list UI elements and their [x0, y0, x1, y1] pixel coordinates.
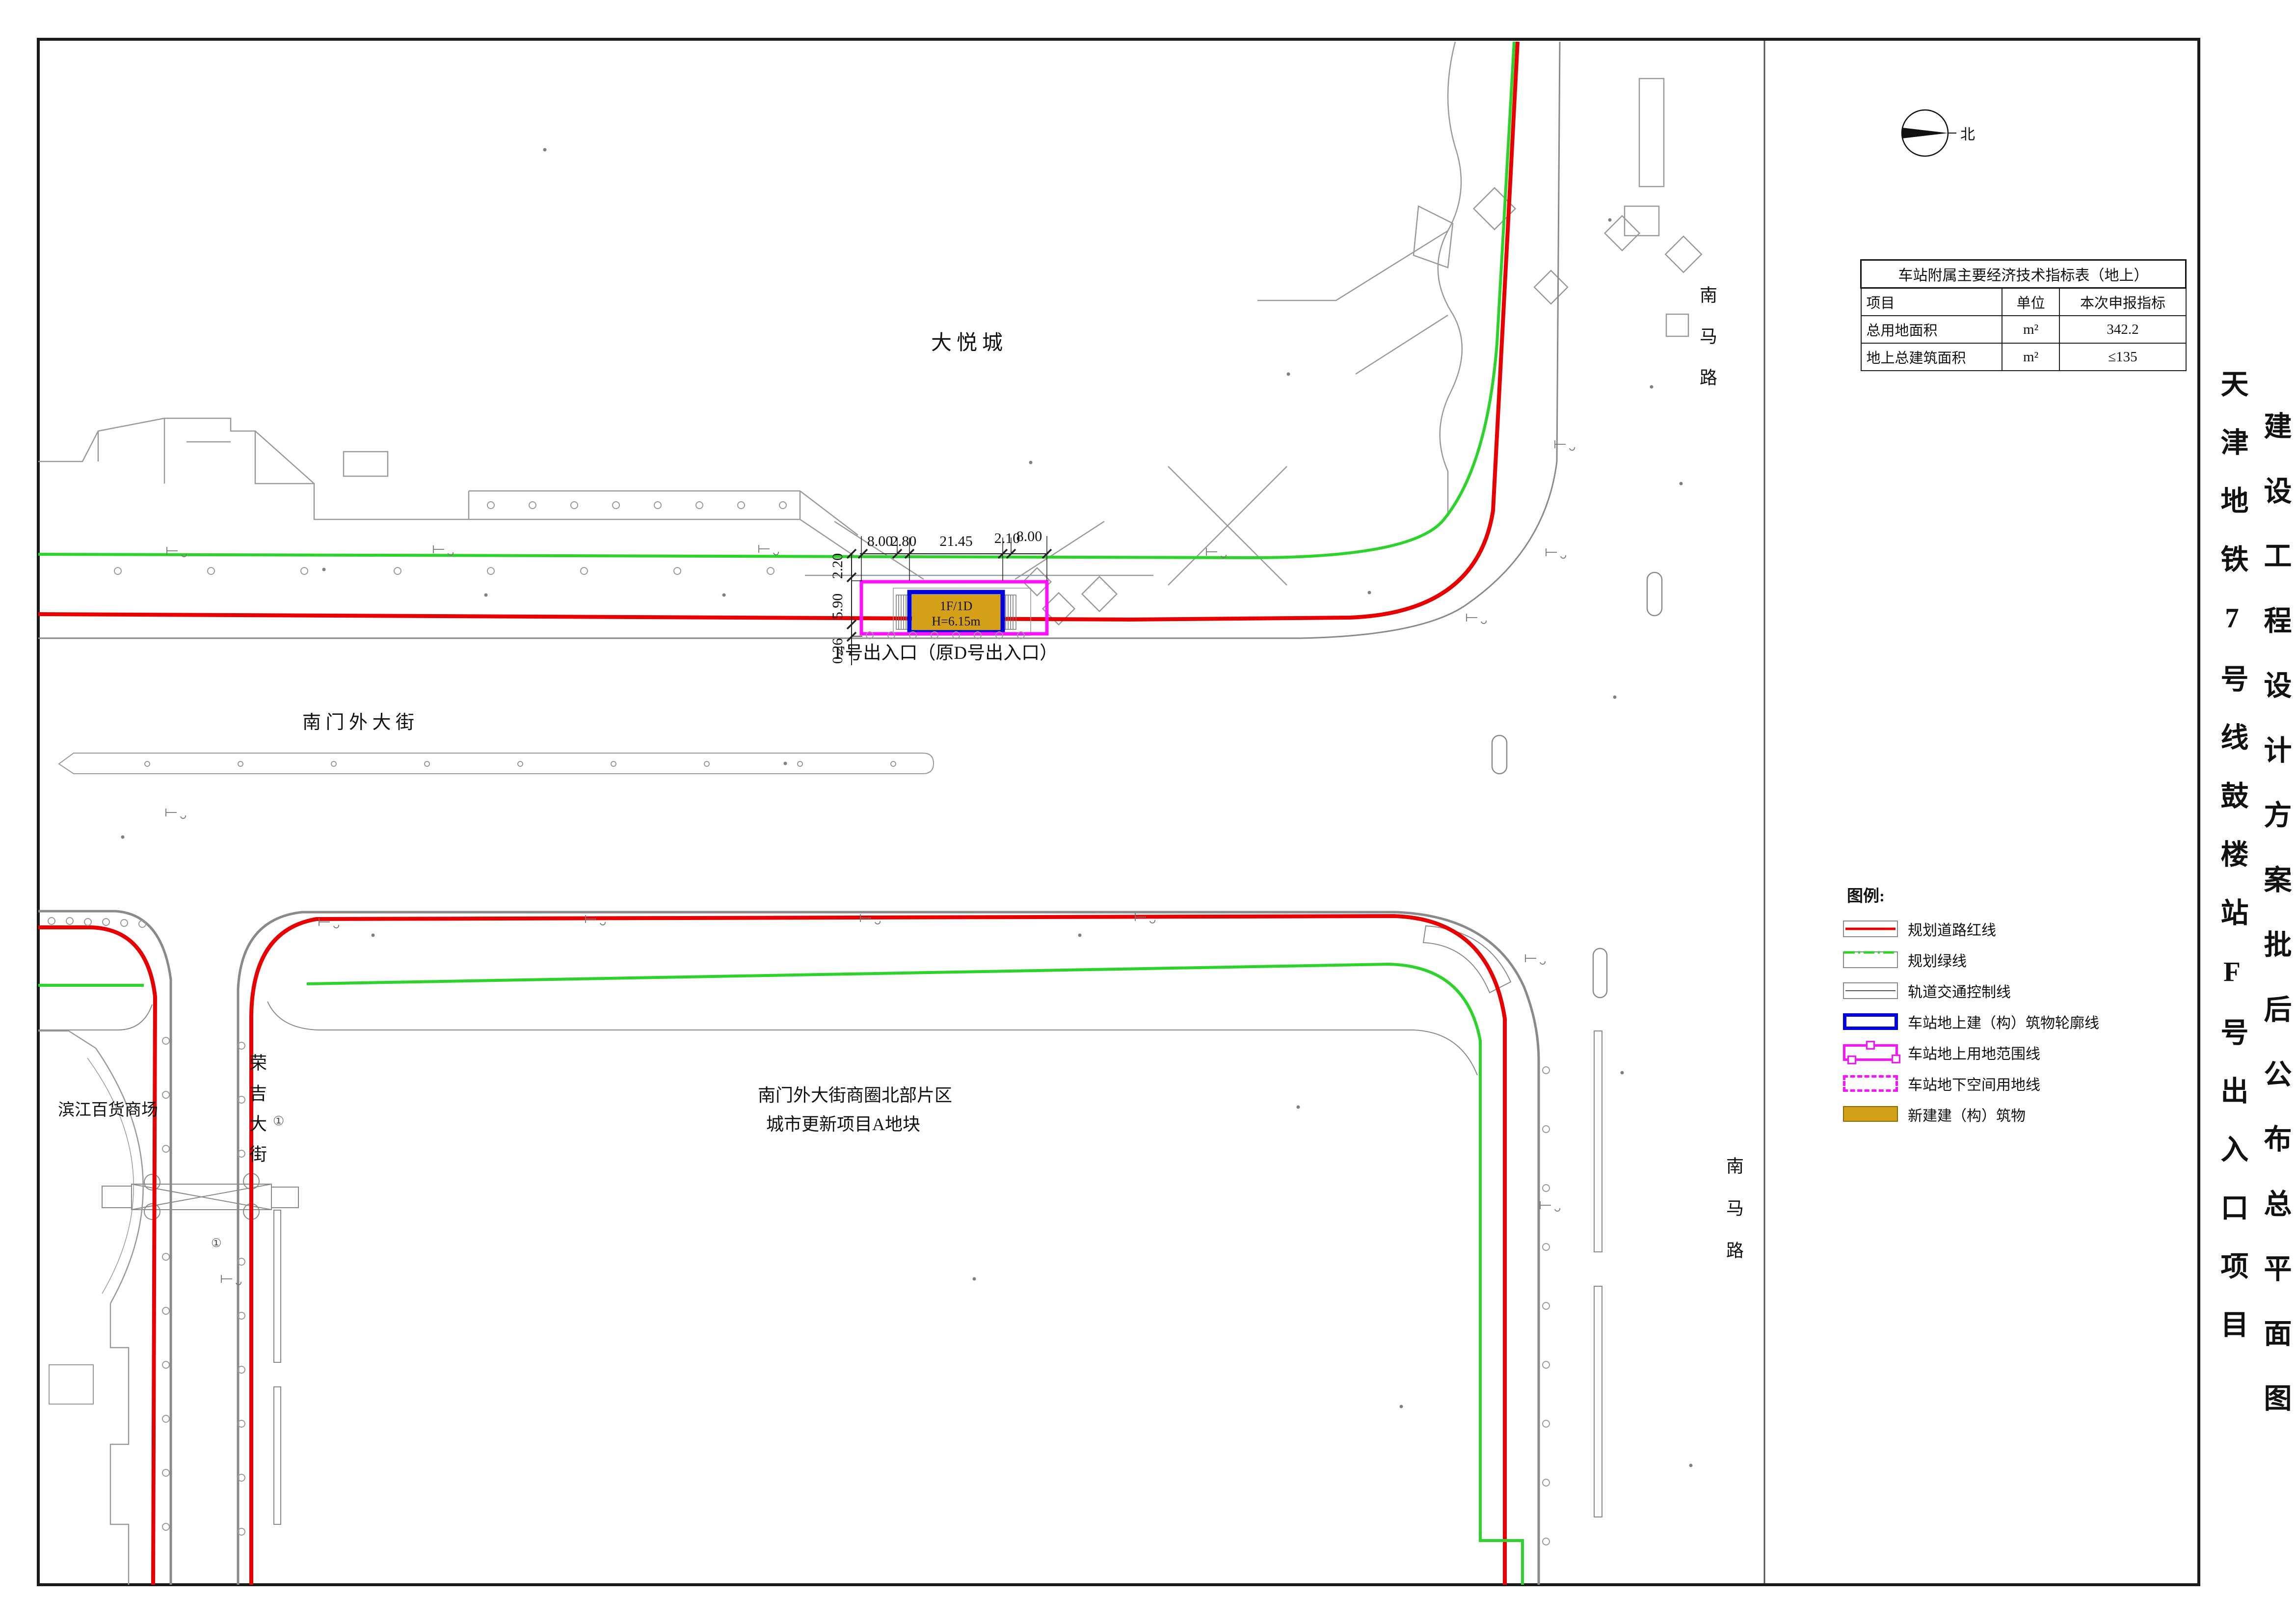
legend-label: 新建建（构）筑物 [1908, 1104, 2026, 1125]
magenta-rect-symbol [1843, 1044, 1898, 1061]
road-control-lines [38, 42, 1560, 1585]
spec-cell-land-area-name: 总用地面积 [1861, 316, 2002, 343]
green-dash-line-symbol [1843, 951, 1898, 968]
spec-table: 车站附属主要经济技术指标表（地上） 项目 单位 本次申报指标 总用地面积 m² … [1860, 259, 2187, 371]
blue-rect-symbol [1843, 1013, 1898, 1030]
legend-item-station-outline: 车站地上建（构）筑物轮廓线 [1843, 1006, 2147, 1037]
planter-diamonds [1023, 188, 1702, 625]
legend-label: 规划道路红线 [1908, 918, 1996, 940]
legend-item-green-line: 规划绿线 [1843, 944, 2147, 975]
label-mall: 大悦城 [931, 332, 1008, 354]
gold-fill-symbol [1843, 1106, 1898, 1122]
site-plan-canvas: 1F/1D H=6.15m 8.00 2.80 21.45 2.10 8.00 [0, 0, 2296, 1624]
tree-circles [48, 568, 1549, 1545]
legend-item-road-red-line: 规划道路红线 [1843, 913, 2147, 944]
drawing-title-vertical: 建设工程设计方案批后公布总平面图 [2255, 411, 2295, 1448]
svg-text:8.00: 8.00 [1016, 528, 1042, 544]
control-line-symbol [1843, 982, 1898, 999]
spec-table-row: 地上总建筑面积 m² ≤135 [1861, 343, 2186, 371]
circled-marker-a: ① [273, 1114, 284, 1128]
circled-marker-b: ① [211, 1237, 222, 1250]
label-nanmalu-bottom: 南马路 [1721, 1157, 1746, 1283]
spec-table-title-row: 车站附属主要经济技术指标表（地上） [1861, 260, 2186, 288]
colonnade-columns [487, 502, 786, 509]
dimension-labels-horizontal: 8.00 2.80 21.45 2.10 8.00 [867, 528, 1042, 549]
label-block-line2: 城市更新项目A地块 [766, 1114, 920, 1134]
red-line-symbol [1843, 920, 1898, 937]
label-block-line1: 南门外大街商圈北部片区 [758, 1085, 952, 1105]
drawing-sheet: 1F/1D H=6.15m 8.00 2.80 21.45 2.10 8.00 [0, 0, 2296, 1624]
spec-table-row: 总用地面积 m² 342.2 [1861, 316, 2186, 343]
label-nanmalu-top: 南马路 [1694, 286, 1720, 409]
svg-text:5.90: 5.90 [829, 594, 846, 620]
label-rongji-street: 荣吉大街 [244, 1054, 269, 1175]
spec-cell-land-area-unit: m² [2002, 316, 2060, 343]
spec-cell-land-area-value: 342.2 [2059, 316, 2186, 343]
legend-label: 车站地上建（构）筑物轮廓线 [1908, 1011, 2099, 1032]
planning-red-lines [38, 42, 1518, 1585]
legend-label: 车站地下空间用地线 [1908, 1073, 2040, 1094]
spec-table-header-row: 项目 单位 本次申报指标 [1861, 288, 2186, 316]
label-binjiang-store: 滨江百货商场 [58, 1101, 158, 1119]
legend: 图例: 规划道路红线 规划绿线 轨道交通控制线 车站地上建（构）筑物轮廓线 [1843, 883, 2147, 1130]
legend-item-land-range: 车站地上用地范围线 [1843, 1037, 2147, 1068]
survey-marks [166, 440, 1575, 1285]
planning-green-lines [38, 42, 1522, 1585]
map-dots [121, 148, 1693, 1467]
legend-label: 车站地上用地范围线 [1908, 1042, 2040, 1063]
legend-title: 图例: [1847, 883, 2147, 906]
entrance-tag-floors: 1F/1D [940, 599, 972, 613]
spec-col-unit: 单位 [2002, 288, 2060, 316]
svg-text:8.00: 8.00 [867, 533, 893, 549]
legend-item-control-line: 轨道交通控制线 [1843, 975, 2147, 1006]
spec-cell-floor-area-unit: m² [2002, 343, 2060, 371]
spec-table-title: 车站附属主要经济技术指标表（地上） [1861, 260, 2186, 288]
spec-col-item: 项目 [1861, 288, 2002, 316]
north-arrow: 北 [1902, 110, 1975, 156]
project-title-vertical: 天津地铁7号线鼓楼站F号出入口项目 [2212, 369, 2252, 1368]
svg-text:2.80: 2.80 [891, 533, 917, 549]
legend-label: 规划绿线 [1908, 949, 1967, 971]
label-entrance: F号出入口（原D号出入口） [835, 643, 1058, 663]
spec-cell-floor-area-name: 地上总建筑面积 [1861, 343, 2002, 371]
magenta-dash-rect-symbol [1843, 1075, 1898, 1092]
traffic-islands [1492, 572, 1662, 998]
legend-item-new-building: 新建建（构）筑物 [1843, 1099, 2147, 1130]
spec-cell-floor-area-value: ≤135 [2059, 343, 2186, 371]
legend-label: 轨道交通控制线 [1908, 980, 2011, 1001]
station-entrance-group: 1F/1D H=6.15m [861, 582, 1047, 635]
north-label: 北 [1960, 127, 1975, 143]
entrance-tag-height: H=6.15m [932, 614, 980, 628]
legend-item-underground-range: 车站地下空间用地线 [1843, 1068, 2147, 1099]
svg-text:2.20: 2.20 [829, 553, 846, 579]
label-nanmenwai-street: 南 门 外 大 街 [302, 712, 414, 733]
spec-col-value: 本次申报指标 [2059, 288, 2186, 316]
svg-text:21.45: 21.45 [939, 533, 973, 549]
mall-building-outlines [38, 42, 1688, 585]
